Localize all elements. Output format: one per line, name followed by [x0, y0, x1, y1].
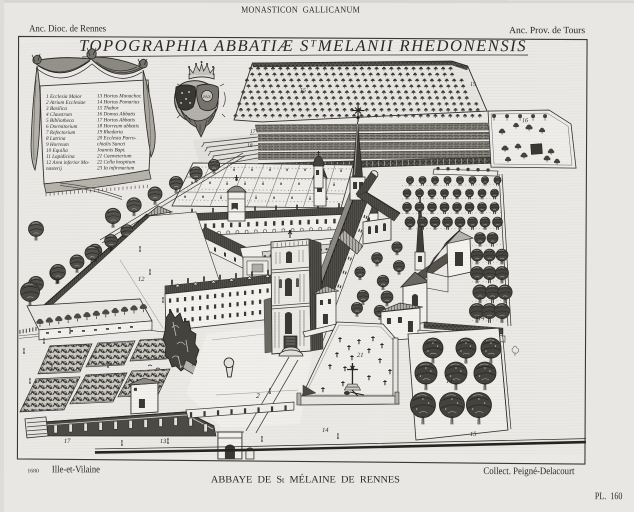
svg-text:15: 15: [470, 431, 477, 438]
svg-text:1680: 1680: [27, 468, 39, 474]
svg-text:Anc. Dioc. de Rennes: Anc. Dioc. de Rennes: [29, 24, 106, 34]
svg-text:Anc. Prov. de Tours: Anc. Prov. de Tours: [509, 26, 585, 36]
svg-text:ABBAYE DE St MÉLAINE DE R: ABBAYE DE St MÉLAINE DE RENNES: [211, 473, 400, 485]
svg-text:13: 13: [160, 438, 167, 445]
svg-text:17: 17: [64, 438, 71, 445]
svg-text:PL. 160: PL. 160: [595, 491, 623, 502]
svg-text:12: 12: [138, 276, 145, 283]
svg-text:MONASTICON GALLICANUM: MONASTICON GALLICANUM: [241, 4, 360, 14]
svg-text:Ille-et-Vilaine: Ille-et-Vilaine: [52, 464, 100, 475]
svg-text:2: 2: [256, 391, 260, 400]
svg-text:Collect. Peigné-Delacourt: Collect. Peigné-Delacourt: [483, 466, 574, 477]
svg-text:PAX: PAX: [203, 94, 211, 99]
